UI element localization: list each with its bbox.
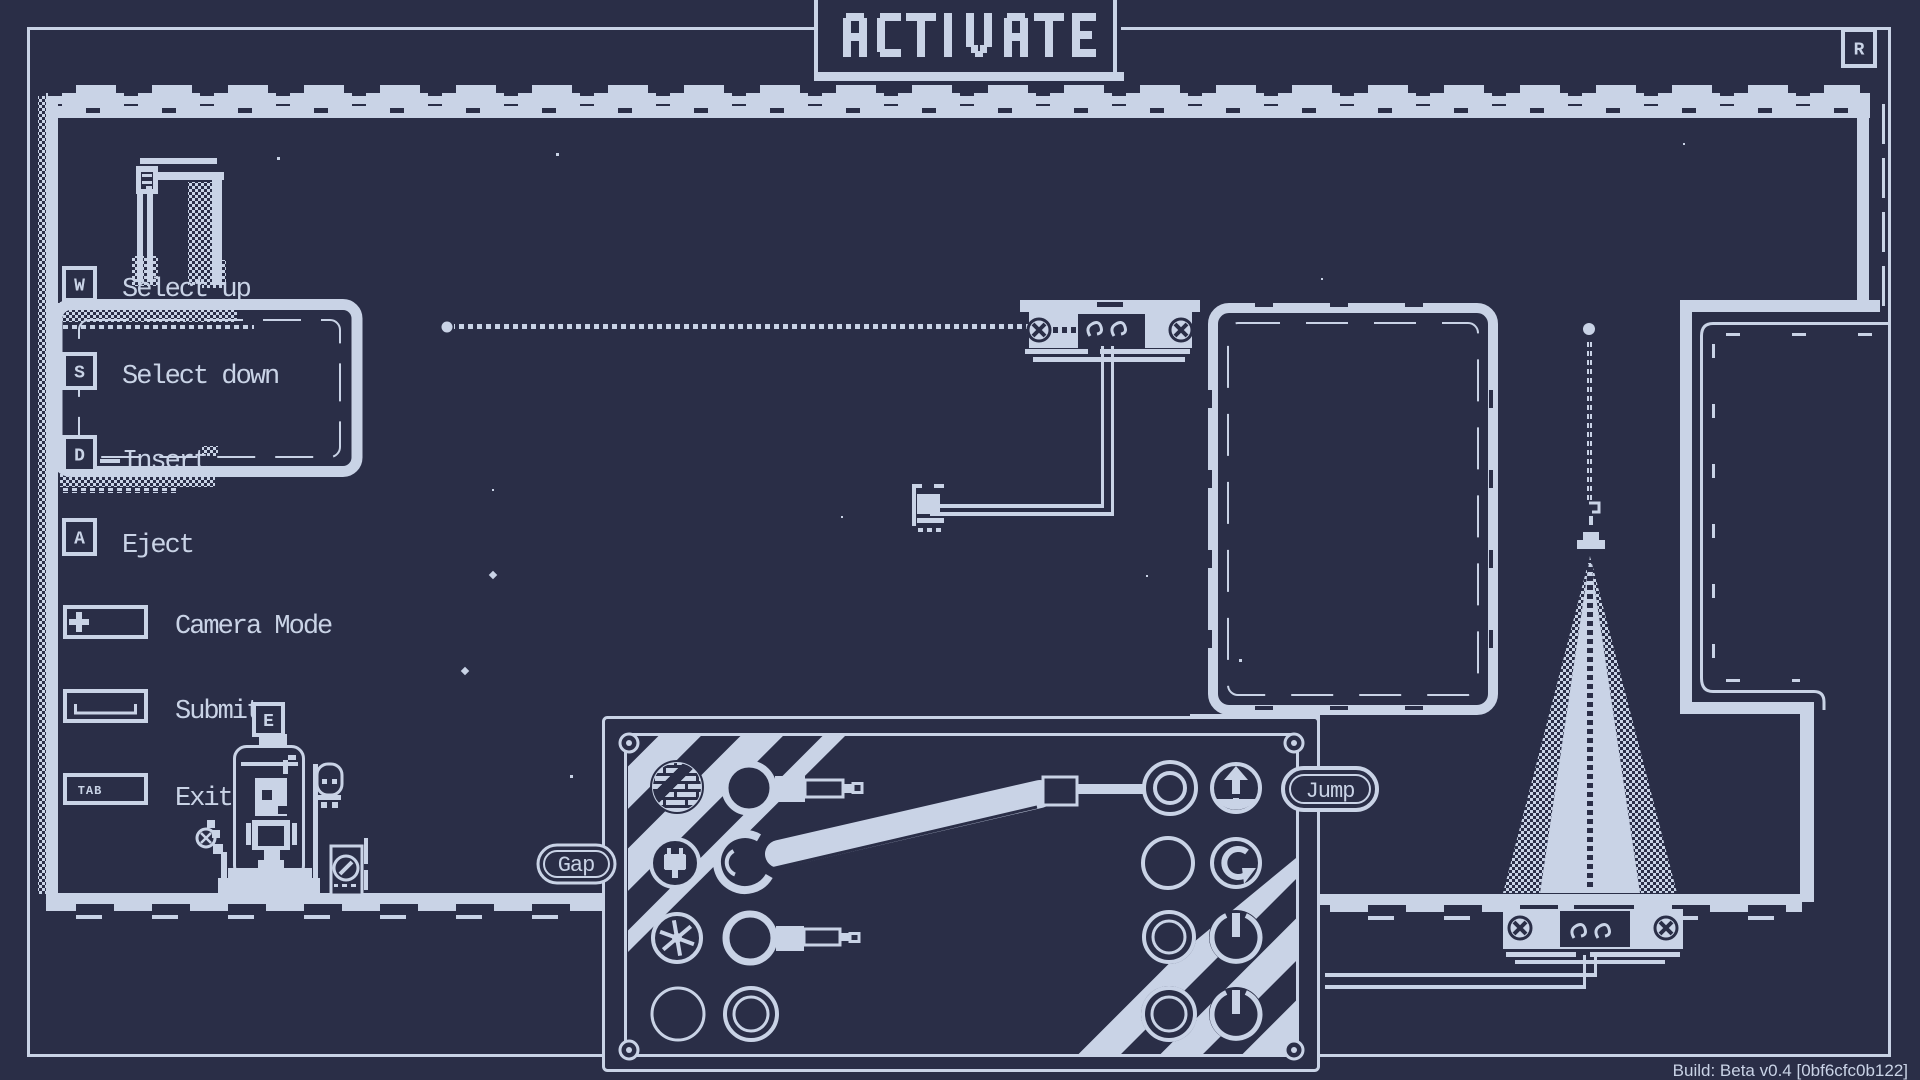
- svg-text:Select down: Select down: [122, 362, 278, 392]
- svg-text:Camera Mode: Camera Mode: [175, 612, 332, 642]
- svg-text:Gap: Gap: [558, 853, 595, 878]
- svg-text:Eject: Eject: [122, 531, 193, 561]
- svg-text:S: S: [74, 363, 85, 383]
- svg-text:E: E: [263, 712, 274, 732]
- svg-text:Build: Beta v0.4 [0bf6cfc0b122: Build: Beta v0.4 [0bf6cfc0b122]: [1673, 1061, 1908, 1080]
- svg-text:D: D: [74, 446, 85, 466]
- svg-text:W: W: [74, 276, 85, 296]
- svg-text:TAB: TAB: [78, 784, 103, 798]
- svg-text:Insert: Insert: [122, 447, 207, 477]
- svg-text:R: R: [1854, 40, 1865, 60]
- svg-text:A: A: [74, 529, 85, 549]
- svg-text:Jump: Jump: [1306, 779, 1355, 804]
- svg-text:Submit: Submit: [175, 697, 260, 727]
- svg-text:Exit: Exit: [175, 784, 232, 814]
